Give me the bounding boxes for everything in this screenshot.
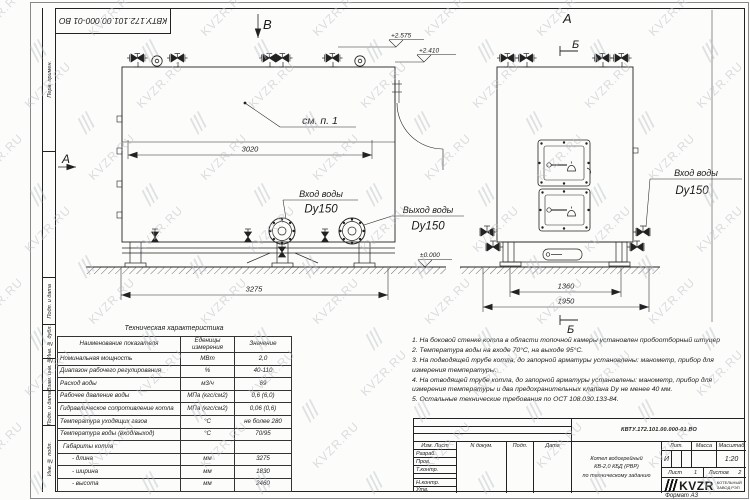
tech-table-title: Техническая характеристика	[57, 325, 291, 332]
table-row: Габариты котла	[58, 441, 292, 454]
scale-value: 1:20	[716, 450, 746, 467]
lit-value: И	[661, 450, 671, 467]
cell-name: Температура уходящих газов	[58, 415, 181, 428]
format-label: Формат А3	[618, 493, 745, 499]
doc-name-line: Котел водогрейный	[590, 455, 642, 464]
technical-notes: 1. На боковой стенке котла в области топ…	[412, 336, 743, 405]
cell-name: - длина	[58, 453, 181, 466]
scale-label: Масштаб	[716, 441, 746, 450]
cell-value: 0,6 (6,0)	[235, 390, 292, 403]
note-item: 3. На подводящей трубе котла, до запорно…	[412, 356, 743, 375]
cell-value: 2,0	[235, 353, 292, 366]
strip-label: Взам. инв. №	[47, 359, 53, 391]
cell-unit: °С	[181, 428, 235, 441]
cell-value: 2460	[235, 478, 292, 491]
sheet-value: 1	[694, 470, 697, 476]
drawing-sheet: Перв. примен. Подп. и дата Инв. № дубл. …	[0, 0, 750, 500]
strip-cell	[43, 152, 56, 278]
doc-name-line: КВ-2,0 КБД (РВР)	[594, 463, 639, 472]
gost-left-strip: Перв. примен. Подп. и дата Инв. № дубл. …	[42, 8, 55, 492]
cell-unit: °С	[181, 415, 235, 428]
strip-label: Инв. № дубл.	[47, 325, 53, 358]
table-row: - ширинамм1830	[58, 466, 292, 479]
cell-name: Температура воды (вход/выход)	[58, 428, 181, 441]
cell-unit: мм	[181, 478, 235, 491]
strip-cell: Инв. № подл.	[43, 426, 56, 492]
cell-unit	[181, 441, 235, 454]
strip-label: Подп. и дата	[47, 391, 53, 425]
note-item: 2. Температура воды на входе 70°С, на вы…	[412, 346, 743, 356]
row-tkontr: Т.контр.	[414, 465, 456, 473]
cell-unit: МПа (кгс/см2)	[181, 390, 235, 403]
strip-cell: Подп. и дата	[43, 278, 56, 325]
cell-unit: МПа (кгс/см2)	[181, 403, 235, 416]
cell-name: Диапазон рабочего регулирования	[58, 365, 181, 378]
sheets-label: Листов	[709, 470, 729, 476]
cell-name: Гидравлическое сопротивление котла	[58, 403, 181, 416]
col-header: Значение	[235, 337, 292, 353]
row-utv: Утв.	[414, 486, 456, 493]
doc-name: Котел водогрейный КВ-2,0 КБД (РВР) по те…	[571, 441, 661, 493]
cell-name: Габариты котла	[58, 441, 181, 454]
company-logo-cell: KVZR КОТЕЛЬНЫЙ ЗАВОД РЭП	[661, 477, 746, 493]
table-row: Диапазон рабочего регулирования%40-110	[58, 365, 292, 378]
note-item: 1. На боковой стенке котла в области топ…	[412, 336, 743, 346]
strip-label: Инв. № подл.	[47, 442, 53, 476]
cell-value: 1830	[235, 466, 292, 479]
cell-value: 0,06 (0,6)	[235, 403, 292, 416]
lit-label: Лит.	[661, 441, 691, 450]
sheet-label: Лист	[668, 470, 682, 476]
table-row: - высотамм2460	[58, 478, 292, 491]
cell-value: 70/95	[235, 428, 292, 441]
note-item: 5. Остальные технические требования по О…	[412, 395, 743, 405]
designation: КВТУ.172.101.00.000-01 ВО	[571, 419, 746, 441]
kvzr-logo-text: KVZR	[679, 479, 714, 493]
col-podp: Подп.	[506, 441, 533, 449]
strip-label: Перв. примен.	[47, 61, 53, 98]
cell-unit: %	[181, 365, 235, 378]
tech-table: Наименование показателя Еденицы измерени…	[57, 336, 292, 492]
cell-value: 40-110	[235, 365, 292, 378]
col-header: Еденицы измерения	[181, 337, 235, 353]
cell-unit: мм	[181, 453, 235, 466]
row-nkontr: Н.контр.	[414, 478, 456, 486]
rotated-designation-box: КВТУ.172.101.00.000-01 ВО	[55, 8, 171, 34]
cell-value	[235, 441, 292, 454]
cell-name: - высота	[58, 478, 181, 491]
cell-unit: мм	[181, 466, 235, 479]
table-row: Номинальная мощностьМВт2,0	[58, 353, 292, 366]
cell-unit: МВт	[181, 353, 235, 366]
table-header-row: Наименование показателя Еденицы измерени…	[58, 337, 292, 353]
col-data: Дата	[533, 441, 571, 449]
rotated-designation-text: КВТУ.172.101.00.000-01 ВО	[59, 16, 167, 26]
cell-unit: м3/ч	[181, 378, 235, 391]
col-ndocum: N докум.	[456, 441, 506, 449]
sheets-value: 2	[738, 470, 741, 476]
sheets-cell: Листов 2	[703, 467, 746, 477]
col-izm-list: Изм. Лист	[414, 441, 456, 449]
mass-label: Масса	[691, 441, 716, 450]
kvzr-logo-icon	[664, 479, 678, 492]
col-header: Наименование показателя	[58, 337, 181, 353]
sheet-cell: Лист 1	[661, 467, 703, 477]
cell-value: не более 280	[235, 415, 292, 428]
table-row: - длинамм3275	[58, 453, 292, 466]
cell-value: 3275	[235, 453, 292, 466]
row-prov: Пров.	[414, 457, 456, 465]
table-row: Температура воды (вход/выход)°С70/95	[58, 428, 292, 441]
doc-name-line: по техническому заданию	[583, 472, 651, 481]
row-razrab: Разраб.	[414, 449, 456, 457]
cell-name: Рабочее давление воды	[58, 390, 181, 403]
cell-value: 69	[235, 378, 292, 391]
table-row: Температура уходящих газов°Сне более 280	[58, 415, 292, 428]
strip-cell: Инв. № дубл.	[43, 325, 56, 359]
strip-label: Подп. и дата	[47, 284, 53, 318]
cell-name: - ширина	[58, 466, 181, 479]
strip-cell: Взам. инв. №	[43, 359, 56, 391]
cell-name: Расход воды	[58, 378, 181, 391]
company-sub2: ЗАВОД РЭП	[717, 486, 742, 491]
note-item: 4. На отводящей трубе котла, до запорной…	[412, 376, 743, 395]
cell-name: Номинальная мощность	[58, 353, 181, 366]
strip-cell: Подп. и дата	[43, 391, 56, 426]
table-row: Гидравлическое сопротивление котлаМПа (к…	[58, 403, 292, 416]
table-row: Расход водым3/ч69	[58, 378, 292, 391]
table-row: Рабочее давление водыМПа (кгс/см2)0,6 (6…	[58, 390, 292, 403]
title-block: КВТУ.172.101.00.000-01 ВО Изм. Лист N до…	[413, 418, 745, 492]
